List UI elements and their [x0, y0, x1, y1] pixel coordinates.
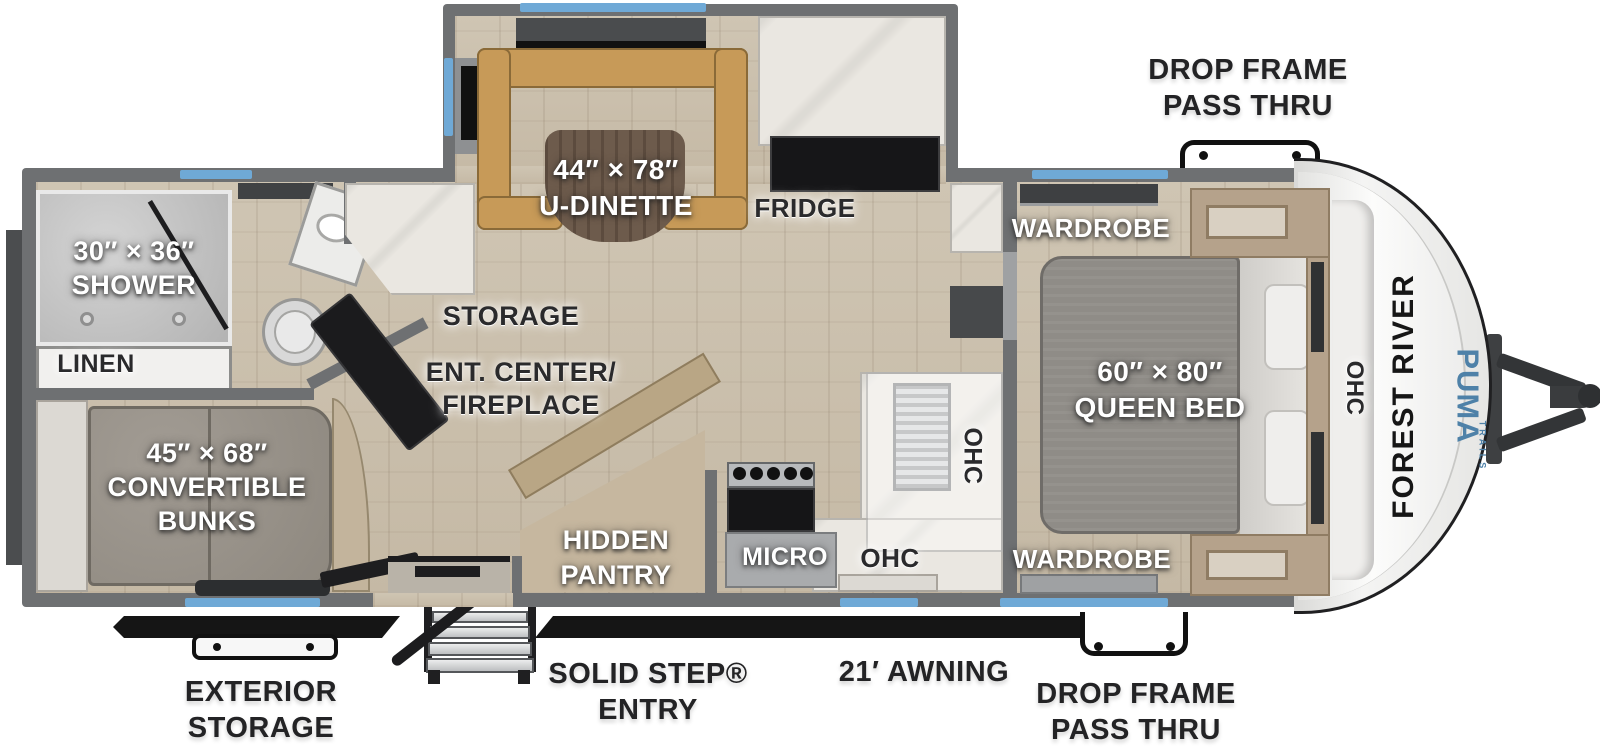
bunk-step: [195, 580, 330, 596]
kitchen-ohc-shelf: [838, 574, 938, 592]
fridge-cabinet: [758, 16, 946, 146]
drop-frame-top-label-2: PASS THRU: [1163, 92, 1333, 121]
wardrobe-bottom-label: WARDROBE: [1013, 546, 1172, 572]
window-strip: [180, 170, 252, 179]
window-strip: [520, 3, 706, 12]
shower-label: SHOWER: [72, 272, 197, 299]
entry-doorway: [373, 593, 513, 607]
range-burner: [767, 467, 780, 480]
hitch-arm-lower: [1495, 407, 1587, 453]
ent-center-label-2: FIREPLACE: [442, 392, 600, 419]
awning-label: 21′ AWNING: [839, 658, 1009, 687]
wardrobe-top-cabinet: [1020, 184, 1158, 206]
bedroom-wall: [1003, 182, 1017, 593]
bunk-size-label: 45″ × 68″: [146, 440, 267, 467]
pantry-label-1: HIDDEN: [563, 527, 670, 554]
exterior-storage-label-2: STORAGE: [188, 714, 334, 743]
headboard-slot: [1311, 432, 1324, 524]
nightstand-top-panel: [1206, 205, 1288, 239]
storage-label: STORAGE: [443, 303, 580, 330]
window-strip: [185, 598, 320, 607]
dinette-table: [545, 130, 685, 242]
linen-label: LINEN: [57, 352, 135, 377]
bunk-label-2: CONVERTIBLE: [107, 474, 306, 501]
drop-frame-bottom-label-1: DROP FRAME: [1036, 680, 1235, 709]
pantry-label-2: PANTRY: [561, 562, 672, 589]
floorplan-canvas: FOREST RIVER PUMA TRAILS 30″ × 36″ SHOWE…: [0, 0, 1600, 756]
shower-size-label: 30″ × 36″: [73, 238, 194, 265]
slideout-tv: [516, 18, 706, 48]
bath-wall-divider: [22, 388, 314, 400]
passthru-screw: [1094, 642, 1103, 651]
dinette-label: U-DINETTE: [539, 192, 693, 220]
window-strip: [1032, 170, 1168, 179]
wardrobe-bottom-cabinet: [1020, 574, 1158, 594]
shower-drain: [80, 312, 94, 326]
window-strip: [1000, 598, 1168, 607]
passthru-screw: [1199, 151, 1208, 160]
exterior-storage-label-1: EXTERIOR: [185, 678, 337, 707]
dinette-bench-top: [477, 48, 748, 88]
bed-size-label: 60″ × 80″: [1097, 358, 1223, 386]
passthru-screw: [1166, 642, 1175, 651]
fridge-label: FRIDGE: [754, 195, 855, 221]
window-strip: [444, 58, 453, 136]
nightstand-bottom-panel: [1206, 550, 1288, 580]
bunk-label-3: BUNKS: [158, 508, 257, 535]
galley-dark-cabinet: [950, 286, 1003, 338]
bunk-armrest: [36, 400, 88, 592]
ohc-front-label: OHC: [1342, 361, 1366, 416]
dinette-size-label: 44″ × 78″: [553, 156, 679, 184]
range-burner: [784, 467, 797, 480]
pillow: [1264, 410, 1310, 506]
rear-bumper: [6, 230, 22, 565]
side-tv: [461, 66, 477, 140]
range-burner: [800, 467, 813, 480]
entry-steps: [424, 606, 536, 682]
storage-door-screw: [306, 643, 314, 651]
entry-label-2: ENTRY: [598, 696, 698, 725]
entry-step-frame: [415, 566, 480, 577]
drop-frame-top-label-1: DROP FRAME: [1148, 56, 1347, 85]
awning-bar-right: [535, 616, 1123, 638]
drop-frame-bottom-label-2: PASS THRU: [1051, 716, 1221, 745]
hitch-knob: [1578, 384, 1600, 408]
shower-drain: [172, 312, 186, 326]
pantry-wall-left: [512, 556, 522, 593]
pantry-wall-right: [705, 470, 717, 593]
shower-pan: [36, 190, 232, 346]
micro-label: MICRO: [742, 545, 828, 570]
entry-label-1: SOLID STEP®: [548, 660, 747, 689]
headboard-slot: [1311, 262, 1324, 352]
galley-upper-cabinet: [950, 183, 1003, 253]
range-oven: [727, 488, 815, 532]
bedroom-door: [1003, 252, 1017, 340]
pillow: [1264, 284, 1310, 370]
ohc-sink-label: OHC: [960, 427, 985, 484]
brand-forest-river: FOREST RIVER: [1389, 273, 1419, 519]
range-burner: [733, 467, 746, 480]
fridge-open-front: [770, 136, 940, 192]
range-burner: [750, 467, 763, 480]
storage-door-screw: [213, 643, 221, 651]
toilet-lid: [274, 310, 316, 354]
brand-puma-series: TRAILS: [1478, 421, 1487, 472]
ohc-counter-label: OHC: [860, 545, 919, 571]
ent-center-label-1: ENT. CENTER/: [426, 359, 617, 386]
bed-label: QUEEN BED: [1075, 394, 1246, 422]
window-strip: [840, 598, 918, 607]
wardrobe-top-label: WARDROBE: [1012, 215, 1171, 241]
